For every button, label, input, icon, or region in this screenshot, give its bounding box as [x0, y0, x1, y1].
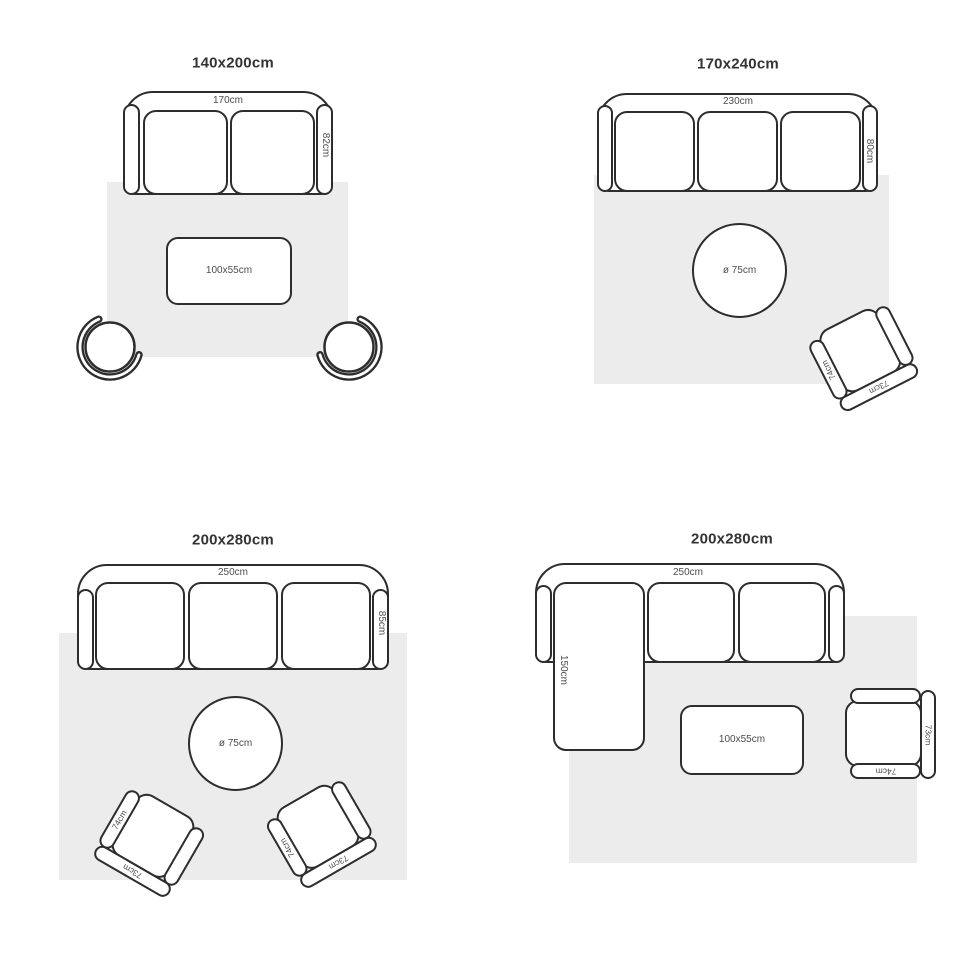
- sofa-width-label: 250cm: [673, 568, 703, 578]
- rug-size-title: 200x280cm: [192, 532, 274, 549]
- sofa-chaise-label: 150cm: [558, 655, 568, 685]
- armchair-back-label: 73cm: [924, 724, 933, 745]
- armchair: 74cm 73cm: [845, 688, 936, 779]
- sofa-cushion: [780, 111, 861, 192]
- rug-size-title: 200x280cm: [691, 531, 773, 548]
- round-table: ø 75cm: [188, 696, 283, 791]
- round-table-label: ø 75cm: [219, 739, 252, 749]
- round-chair-icon: [75, 312, 145, 382]
- armchair-arm-bottom: 74cm: [850, 763, 921, 779]
- quadrant-170x240: 170x240cm 230cm 80cm ø 75cm 74cm 73cm: [485, 0, 970, 485]
- sofa-arm-left: [123, 104, 140, 195]
- sofa-depth-label: 80cm: [864, 139, 874, 163]
- sofa-cushion: [614, 111, 695, 192]
- sofa-width-label: 230cm: [723, 97, 753, 107]
- sofa-cushion: [281, 582, 371, 670]
- round-table-label: ø 75cm: [723, 266, 756, 276]
- rug-size-guide-diagram: 140x200cm 170cm 82cm 100x55cm 170x240cm: [0, 0, 970, 970]
- quadrant-200x280-a: 200x280cm 250cm 85cm ø 75cm 74cm 73cm: [0, 485, 485, 970]
- quadrant-140x200: 140x200cm 170cm 82cm 100x55cm: [0, 0, 485, 485]
- sofa-depth-label: 85cm: [376, 611, 386, 635]
- sofa-cushion: [143, 110, 228, 195]
- sofa-arm-left: [535, 585, 552, 663]
- round-chair-icon: [314, 312, 384, 382]
- sofa-cushion: [697, 111, 778, 192]
- quadrant-200x280-b: 200x280cm 250cm 150cm 100x55cm 74cm 73cm: [485, 485, 970, 970]
- rug-size-title: 170x240cm: [697, 56, 779, 73]
- sofa-cushion: [647, 582, 735, 663]
- sofa-arm-right: [828, 585, 845, 663]
- sofa-cushion: [230, 110, 315, 195]
- coffee-table-label: 100x55cm: [719, 735, 765, 745]
- coffee-table: 100x55cm: [166, 237, 292, 305]
- sofa-width-label: 170cm: [213, 96, 243, 106]
- sofa-width-label: 250cm: [218, 568, 248, 578]
- sofa-cushion: [738, 582, 826, 663]
- round-table: ø 75cm: [692, 223, 787, 318]
- sofa-depth-label: 82cm: [320, 133, 330, 157]
- coffee-table-label: 100x55cm: [206, 266, 252, 276]
- rug-size-title: 140x200cm: [192, 55, 274, 72]
- armchair-arm-top: [850, 688, 921, 704]
- sofa-arm-left: [77, 589, 94, 670]
- sofa-cushion: [95, 582, 185, 670]
- armchair-arm-label: 74cm: [875, 767, 896, 776]
- armchair-seat: [845, 700, 922, 767]
- armchair-back: 73cm: [920, 690, 936, 779]
- sofa-cushion: [188, 582, 278, 670]
- armchair-back-label: 73cm: [868, 379, 890, 396]
- coffee-table: 100x55cm: [680, 705, 804, 775]
- sofa-arm-left: [597, 105, 613, 192]
